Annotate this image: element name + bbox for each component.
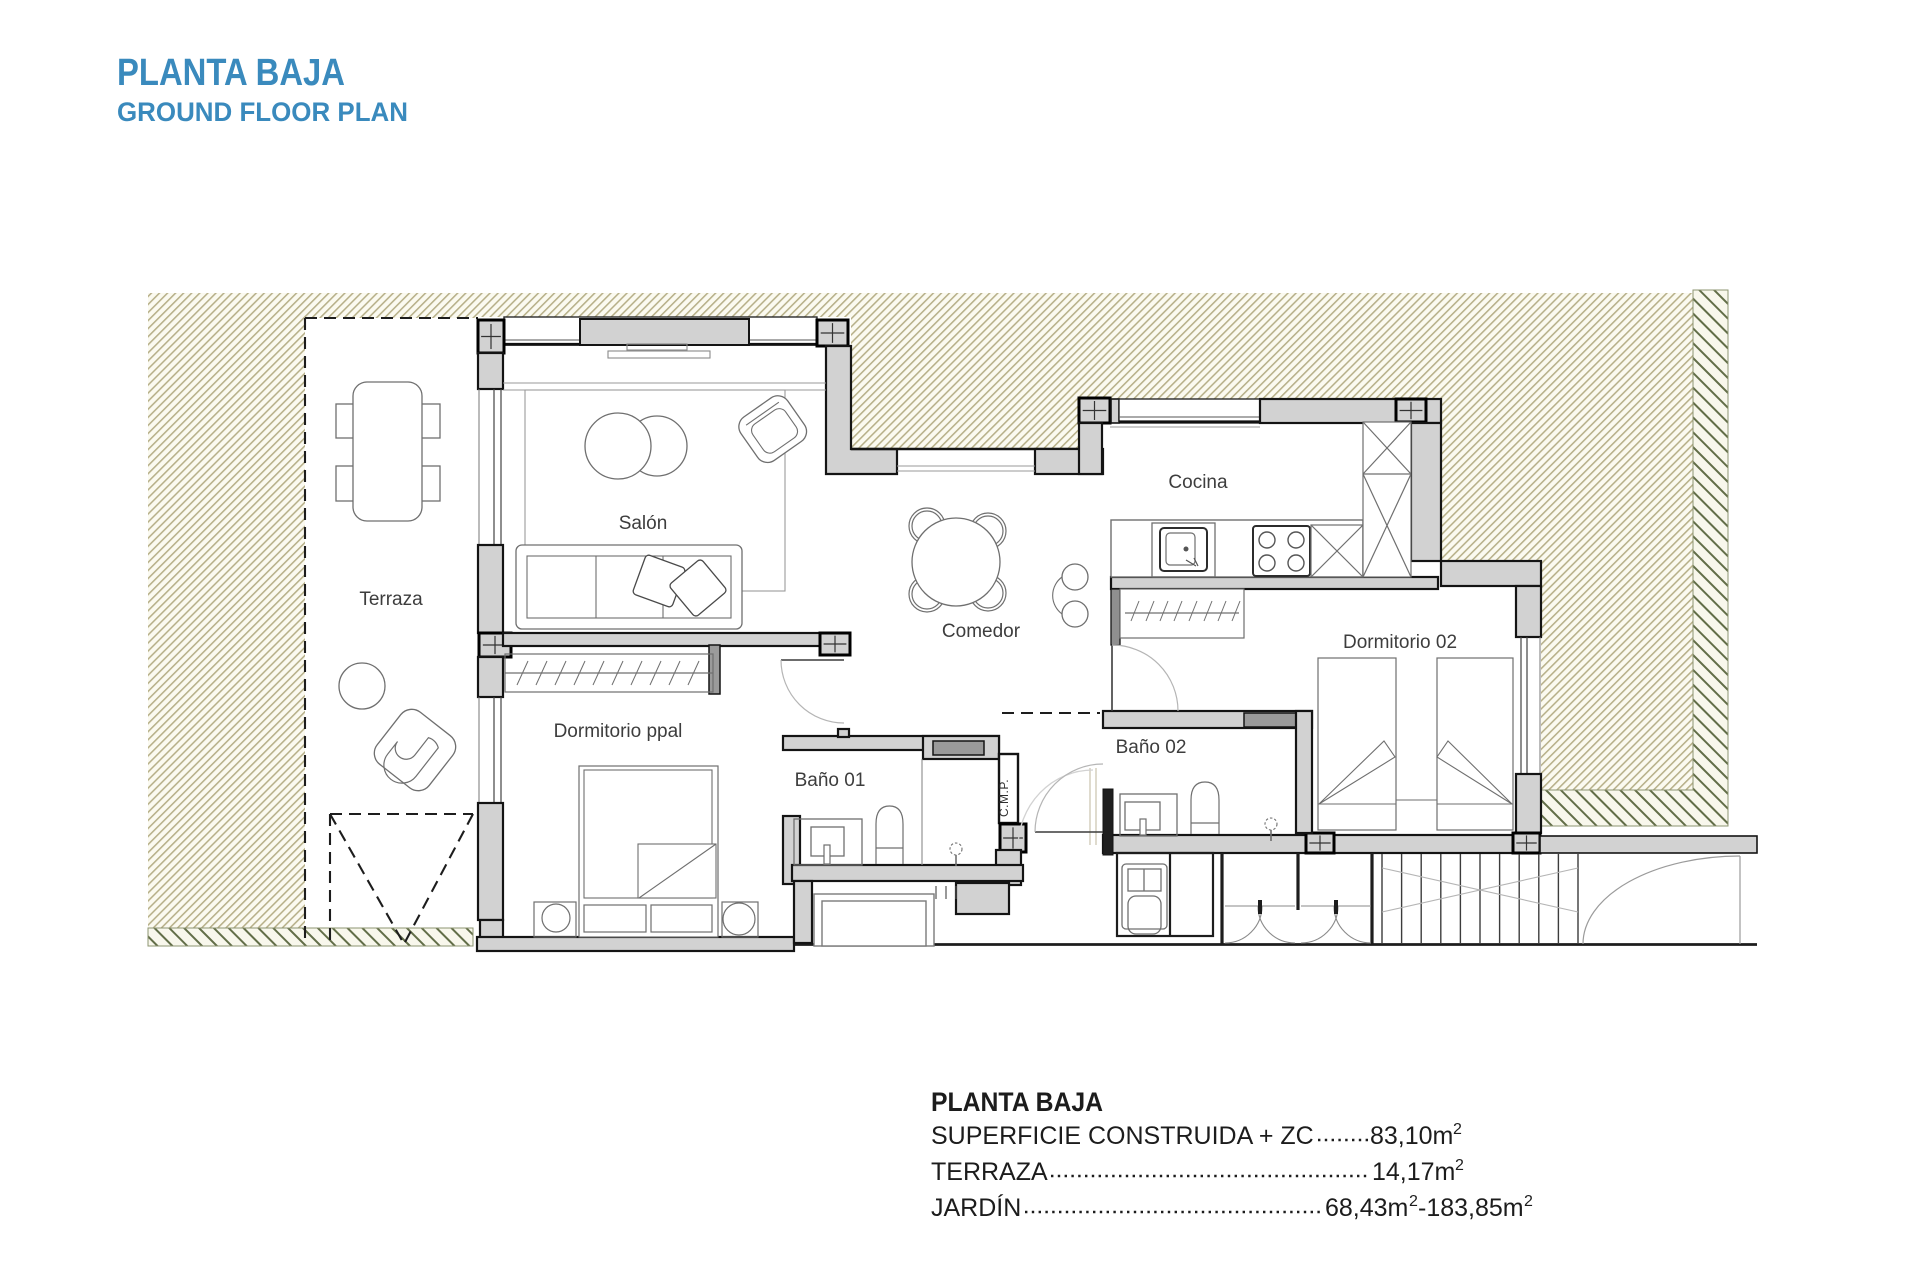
svg-text:PLANTA BAJA: PLANTA BAJA [117, 52, 345, 94]
svg-text:C.M.P.: C.M.P. [997, 779, 1011, 817]
svg-text:Baño 02: Baño 02 [1116, 737, 1187, 758]
svg-text:Dormitorio 02: Dormitorio 02 [1343, 632, 1457, 653]
svg-text:TERRAZA: TERRAZA [931, 1158, 1048, 1186]
svg-text:SUPERFICIE CONSTRUIDA + ZC: SUPERFICIE CONSTRUIDA + ZC [931, 1122, 1314, 1150]
svg-text:2: 2 [1455, 1157, 1464, 1174]
svg-text:68,43m: 68,43m [1325, 1194, 1408, 1222]
svg-text:GROUND FLOOR PLAN: GROUND FLOOR PLAN [117, 97, 408, 127]
svg-text:Cocina: Cocina [1168, 472, 1228, 493]
svg-text:PLANTA BAJA: PLANTA BAJA [931, 1087, 1103, 1117]
svg-text:JARDÍN: JARDÍN [931, 1193, 1021, 1222]
svg-text:2: 2 [1524, 1193, 1533, 1210]
svg-text:Terraza: Terraza [359, 589, 423, 610]
svg-text:-183,85m: -183,85m [1418, 1194, 1524, 1222]
svg-text:2: 2 [1409, 1193, 1418, 1210]
svg-text:Comedor: Comedor [942, 621, 1021, 642]
svg-text:2: 2 [1453, 1121, 1462, 1138]
svg-text:Salón: Salón [619, 513, 668, 534]
svg-text:14,17m: 14,17m [1372, 1158, 1455, 1186]
svg-text:83,10m: 83,10m [1370, 1122, 1453, 1150]
svg-text:Baño 01: Baño 01 [795, 770, 866, 791]
svg-text:Dormitorio ppal: Dormitorio ppal [554, 721, 683, 742]
